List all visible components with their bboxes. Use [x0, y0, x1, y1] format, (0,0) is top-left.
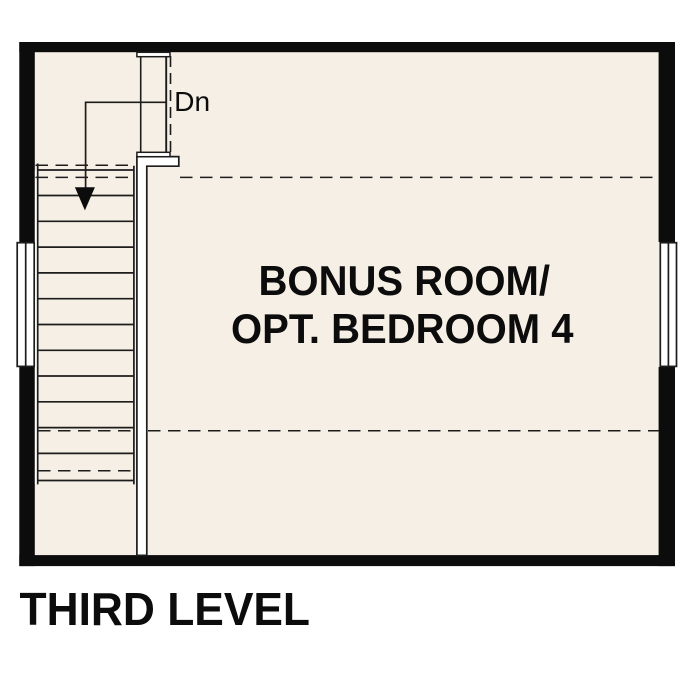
svg-text:OPT. BEDROOM 4: OPT. BEDROOM 4	[231, 305, 574, 352]
svg-text:BONUS ROOM/: BONUS ROOM/	[259, 257, 551, 304]
svg-text:Dn: Dn	[174, 86, 210, 117]
svg-text:THIRD LEVEL: THIRD LEVEL	[20, 583, 311, 635]
